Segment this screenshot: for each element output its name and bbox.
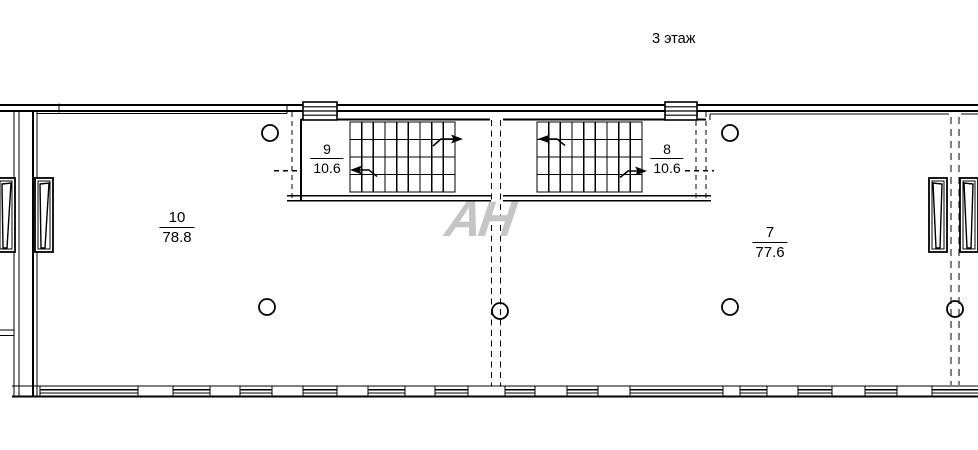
floor-title: 3 этаж	[652, 31, 695, 47]
stair-number: 8	[661, 141, 673, 158]
left-expansion-joint-walls	[0, 111, 37, 396]
watermark: АН	[442, 194, 515, 244]
room-number: 7	[764, 224, 776, 242]
column-markers	[259, 125, 963, 319]
exterior-walls	[0, 104, 978, 121]
room-area: 78.8	[159, 227, 194, 246]
right-expansion-joint-dashed	[951, 117, 959, 385]
stair-treads-right	[537, 122, 642, 192]
stair-number: 9	[321, 141, 333, 158]
column-marker	[259, 299, 275, 315]
column-marker	[722, 125, 738, 141]
floor-plan-page: АН 3 этаж 9 10.6 8 10.6 10 78.8 7 77.6	[0, 0, 978, 450]
column-marker	[947, 301, 963, 317]
casement-window-left-inner	[35, 178, 53, 252]
stair-direction-arrows-left	[350, 135, 463, 177]
stair-label-8: 8 10.6	[650, 141, 683, 176]
vent-right	[665, 102, 697, 120]
column-marker	[262, 125, 278, 141]
stairwell-left	[274, 112, 491, 201]
casement-window-left-outer	[0, 178, 15, 252]
stair-treads-left	[350, 122, 455, 192]
stair-area: 10.6	[650, 158, 683, 176]
bottom-wall-window-band	[12, 386, 978, 397]
stair-area: 10.6	[310, 158, 343, 176]
room-label-10: 10 78.8	[159, 209, 194, 247]
casement-window-right-inner	[929, 178, 947, 252]
center-partition-dashed-line	[492, 120, 501, 386]
room-number: 10	[167, 209, 188, 227]
column-marker	[722, 299, 738, 315]
room-label-7: 7 77.6	[752, 224, 787, 262]
room-area: 77.6	[752, 242, 787, 261]
casement-window-right-outer	[960, 178, 978, 252]
stair-label-9: 9 10.6	[310, 141, 343, 176]
vent-left	[303, 102, 337, 120]
